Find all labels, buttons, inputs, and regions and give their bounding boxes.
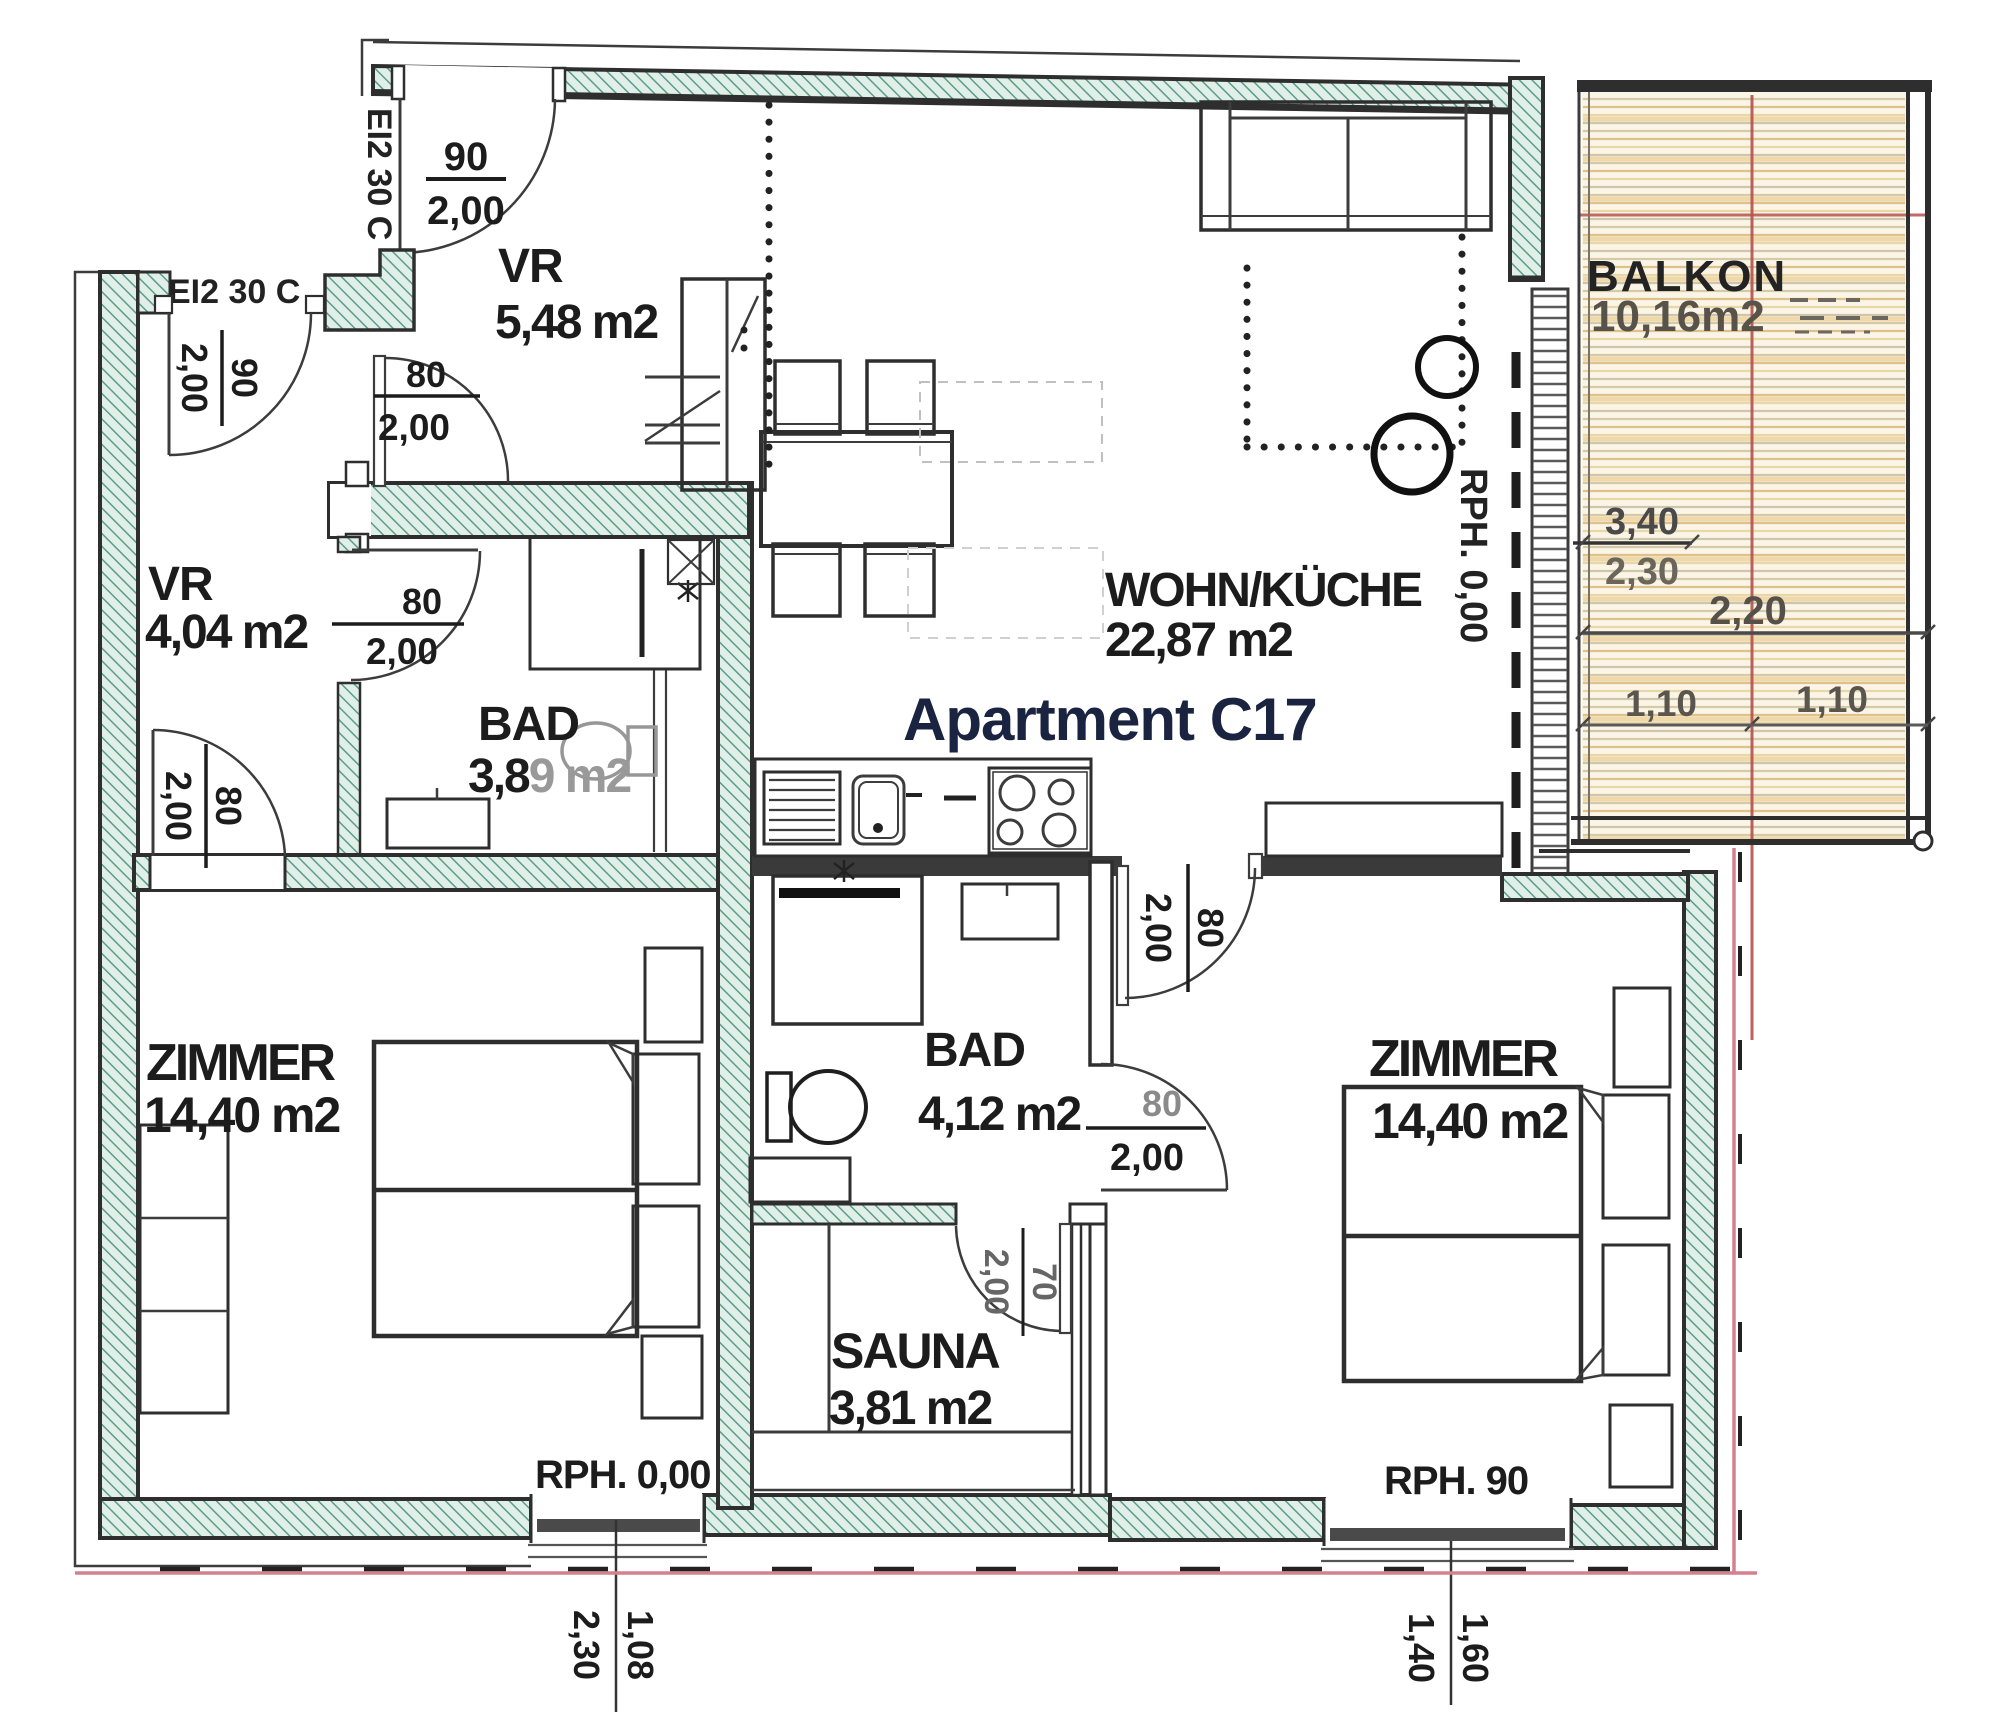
svg-text:2,00: 2,00: [1110, 1137, 1184, 1179]
svg-text:Apartment C17: Apartment C17: [903, 686, 1317, 753]
svg-text:2,00: 2,00: [366, 631, 438, 672]
svg-text:80: 80: [208, 786, 249, 826]
svg-text:80: 80: [1190, 908, 1231, 948]
svg-text:SAUNA: SAUNA: [831, 1323, 1000, 1379]
svg-text:EI2 30 C: EI2 30 C: [168, 273, 300, 311]
svg-text:4,04 m2: 4,04 m2: [145, 606, 307, 659]
svg-text:VR: VR: [498, 240, 563, 293]
svg-text:2,00: 2,00: [1138, 893, 1179, 963]
svg-text:80: 80: [1142, 1083, 1182, 1124]
svg-text:RPH. 0,00: RPH. 0,00: [535, 1453, 711, 1497]
svg-text:90: 90: [444, 135, 489, 179]
svg-text:1,08: 1,08: [620, 1610, 661, 1680]
svg-text:2,00: 2,00: [378, 407, 450, 448]
svg-text:EI2 30 C: EI2 30 C: [360, 108, 398, 240]
svg-text:1,60: 1,60: [1455, 1613, 1496, 1683]
svg-text:2,00: 2,00: [977, 1249, 1015, 1315]
svg-text:1,10: 1,10: [1796, 679, 1868, 720]
svg-text:WOHN/KÜCHE: WOHN/KÜCHE: [1105, 564, 1422, 617]
svg-text:80: 80: [406, 354, 446, 395]
svg-text:RPH. 0,00: RPH. 0,00: [1452, 468, 1494, 643]
svg-text:3,89 m2: 3,89 m2: [468, 750, 630, 803]
svg-text:VR: VR: [148, 558, 213, 611]
svg-text:14,40 m2: 14,40 m2: [144, 1087, 339, 1143]
svg-text:5,48 m2: 5,48 m2: [495, 296, 657, 349]
svg-text:80: 80: [402, 581, 442, 622]
svg-text:RPH. 90: RPH. 90: [1384, 1459, 1528, 1503]
svg-text:90: 90: [224, 358, 265, 398]
svg-text:2,30: 2,30: [566, 1610, 607, 1680]
svg-text:1,40: 1,40: [1401, 1613, 1442, 1683]
svg-text:70: 70: [1025, 1263, 1063, 1301]
svg-text:4,12 m2: 4,12 m2: [918, 1088, 1080, 1141]
svg-text:3,40: 3,40: [1605, 501, 1679, 543]
svg-text:ZIMMER: ZIMMER: [146, 1034, 336, 1092]
svg-text:BAD: BAD: [924, 1024, 1025, 1077]
svg-text:2,30: 2,30: [1605, 551, 1679, 593]
svg-text:2,00: 2,00: [158, 771, 199, 841]
svg-text:14,40 m2: 14,40 m2: [1372, 1093, 1567, 1149]
svg-text:2,20: 2,20: [1709, 589, 1787, 633]
svg-text:22,87 m2: 22,87 m2: [1105, 614, 1292, 667]
svg-text:2,00: 2,00: [174, 343, 215, 413]
svg-text:ZIMMER: ZIMMER: [1369, 1030, 1559, 1088]
svg-text:2,00: 2,00: [427, 189, 505, 233]
svg-text:1,10: 1,10: [1625, 683, 1697, 724]
svg-text:BAD: BAD: [478, 698, 579, 751]
svg-text:10,16m2: 10,16m2: [1591, 292, 1765, 341]
svg-text:3,81 m2: 3,81 m2: [829, 1382, 991, 1435]
